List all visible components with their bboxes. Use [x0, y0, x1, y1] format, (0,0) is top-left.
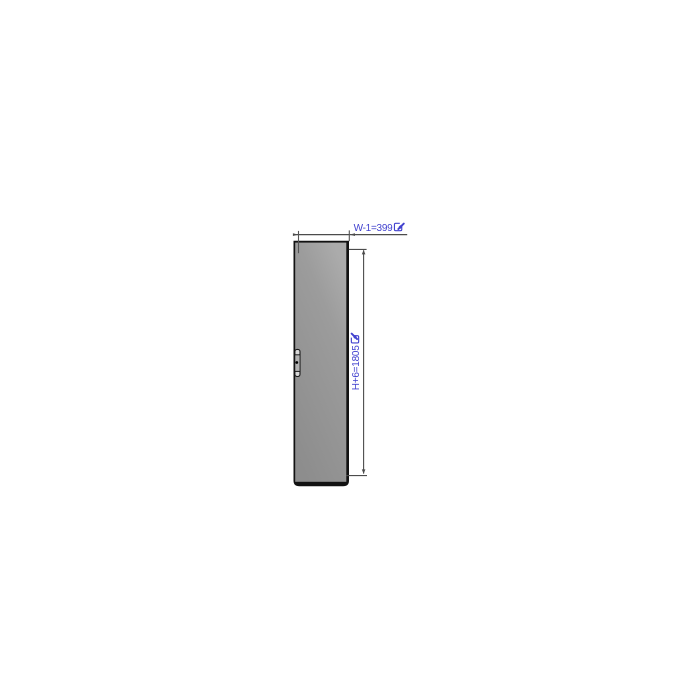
svg-text:W-1=399: W-1=399 [354, 223, 394, 234]
svg-text:H+6=1805: H+6=1805 [351, 345, 362, 390]
